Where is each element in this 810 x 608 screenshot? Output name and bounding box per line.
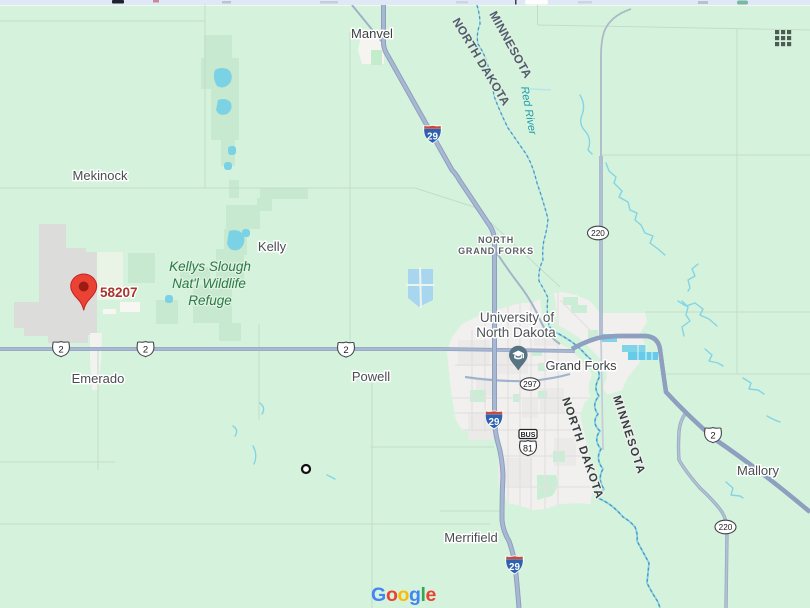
- svg-text:GRAND FORKS: GRAND FORKS: [458, 246, 534, 256]
- svg-text:North Dakota: North Dakota: [476, 325, 556, 340]
- svg-text:e: e: [426, 584, 437, 606]
- svg-text:297: 297: [523, 380, 537, 389]
- svg-text:220: 220: [591, 229, 605, 238]
- svg-text:Emerado: Emerado: [72, 371, 125, 386]
- svg-text:Nat'l Wildlife: Nat'l Wildlife: [172, 276, 246, 291]
- svg-text:G: G: [371, 584, 386, 606]
- svg-text:Powell: Powell: [352, 369, 390, 384]
- svg-text:Mekinock: Mekinock: [73, 168, 128, 183]
- svg-text:University of: University of: [480, 310, 555, 325]
- svg-text:NORTH: NORTH: [478, 235, 514, 245]
- svg-text:29: 29: [427, 131, 438, 142]
- svg-text:Manvel: Manvel: [351, 26, 393, 41]
- svg-text:58207: 58207: [100, 285, 138, 300]
- svg-text:81: 81: [523, 443, 533, 453]
- svg-text:Kellys Slough: Kellys Slough: [169, 259, 251, 274]
- svg-text:BUS: BUS: [521, 432, 536, 439]
- svg-text:Merrifield: Merrifield: [444, 530, 497, 545]
- svg-text:Kelly: Kelly: [258, 239, 287, 254]
- svg-text:Mallory: Mallory: [737, 463, 779, 478]
- svg-text:Grand Forks: Grand Forks: [545, 358, 616, 373]
- svg-text:o: o: [386, 584, 398, 606]
- svg-text:2: 2: [58, 344, 63, 355]
- svg-text:g: g: [409, 584, 421, 606]
- svg-text:o: o: [398, 584, 410, 606]
- svg-text:Refuge: Refuge: [188, 293, 232, 308]
